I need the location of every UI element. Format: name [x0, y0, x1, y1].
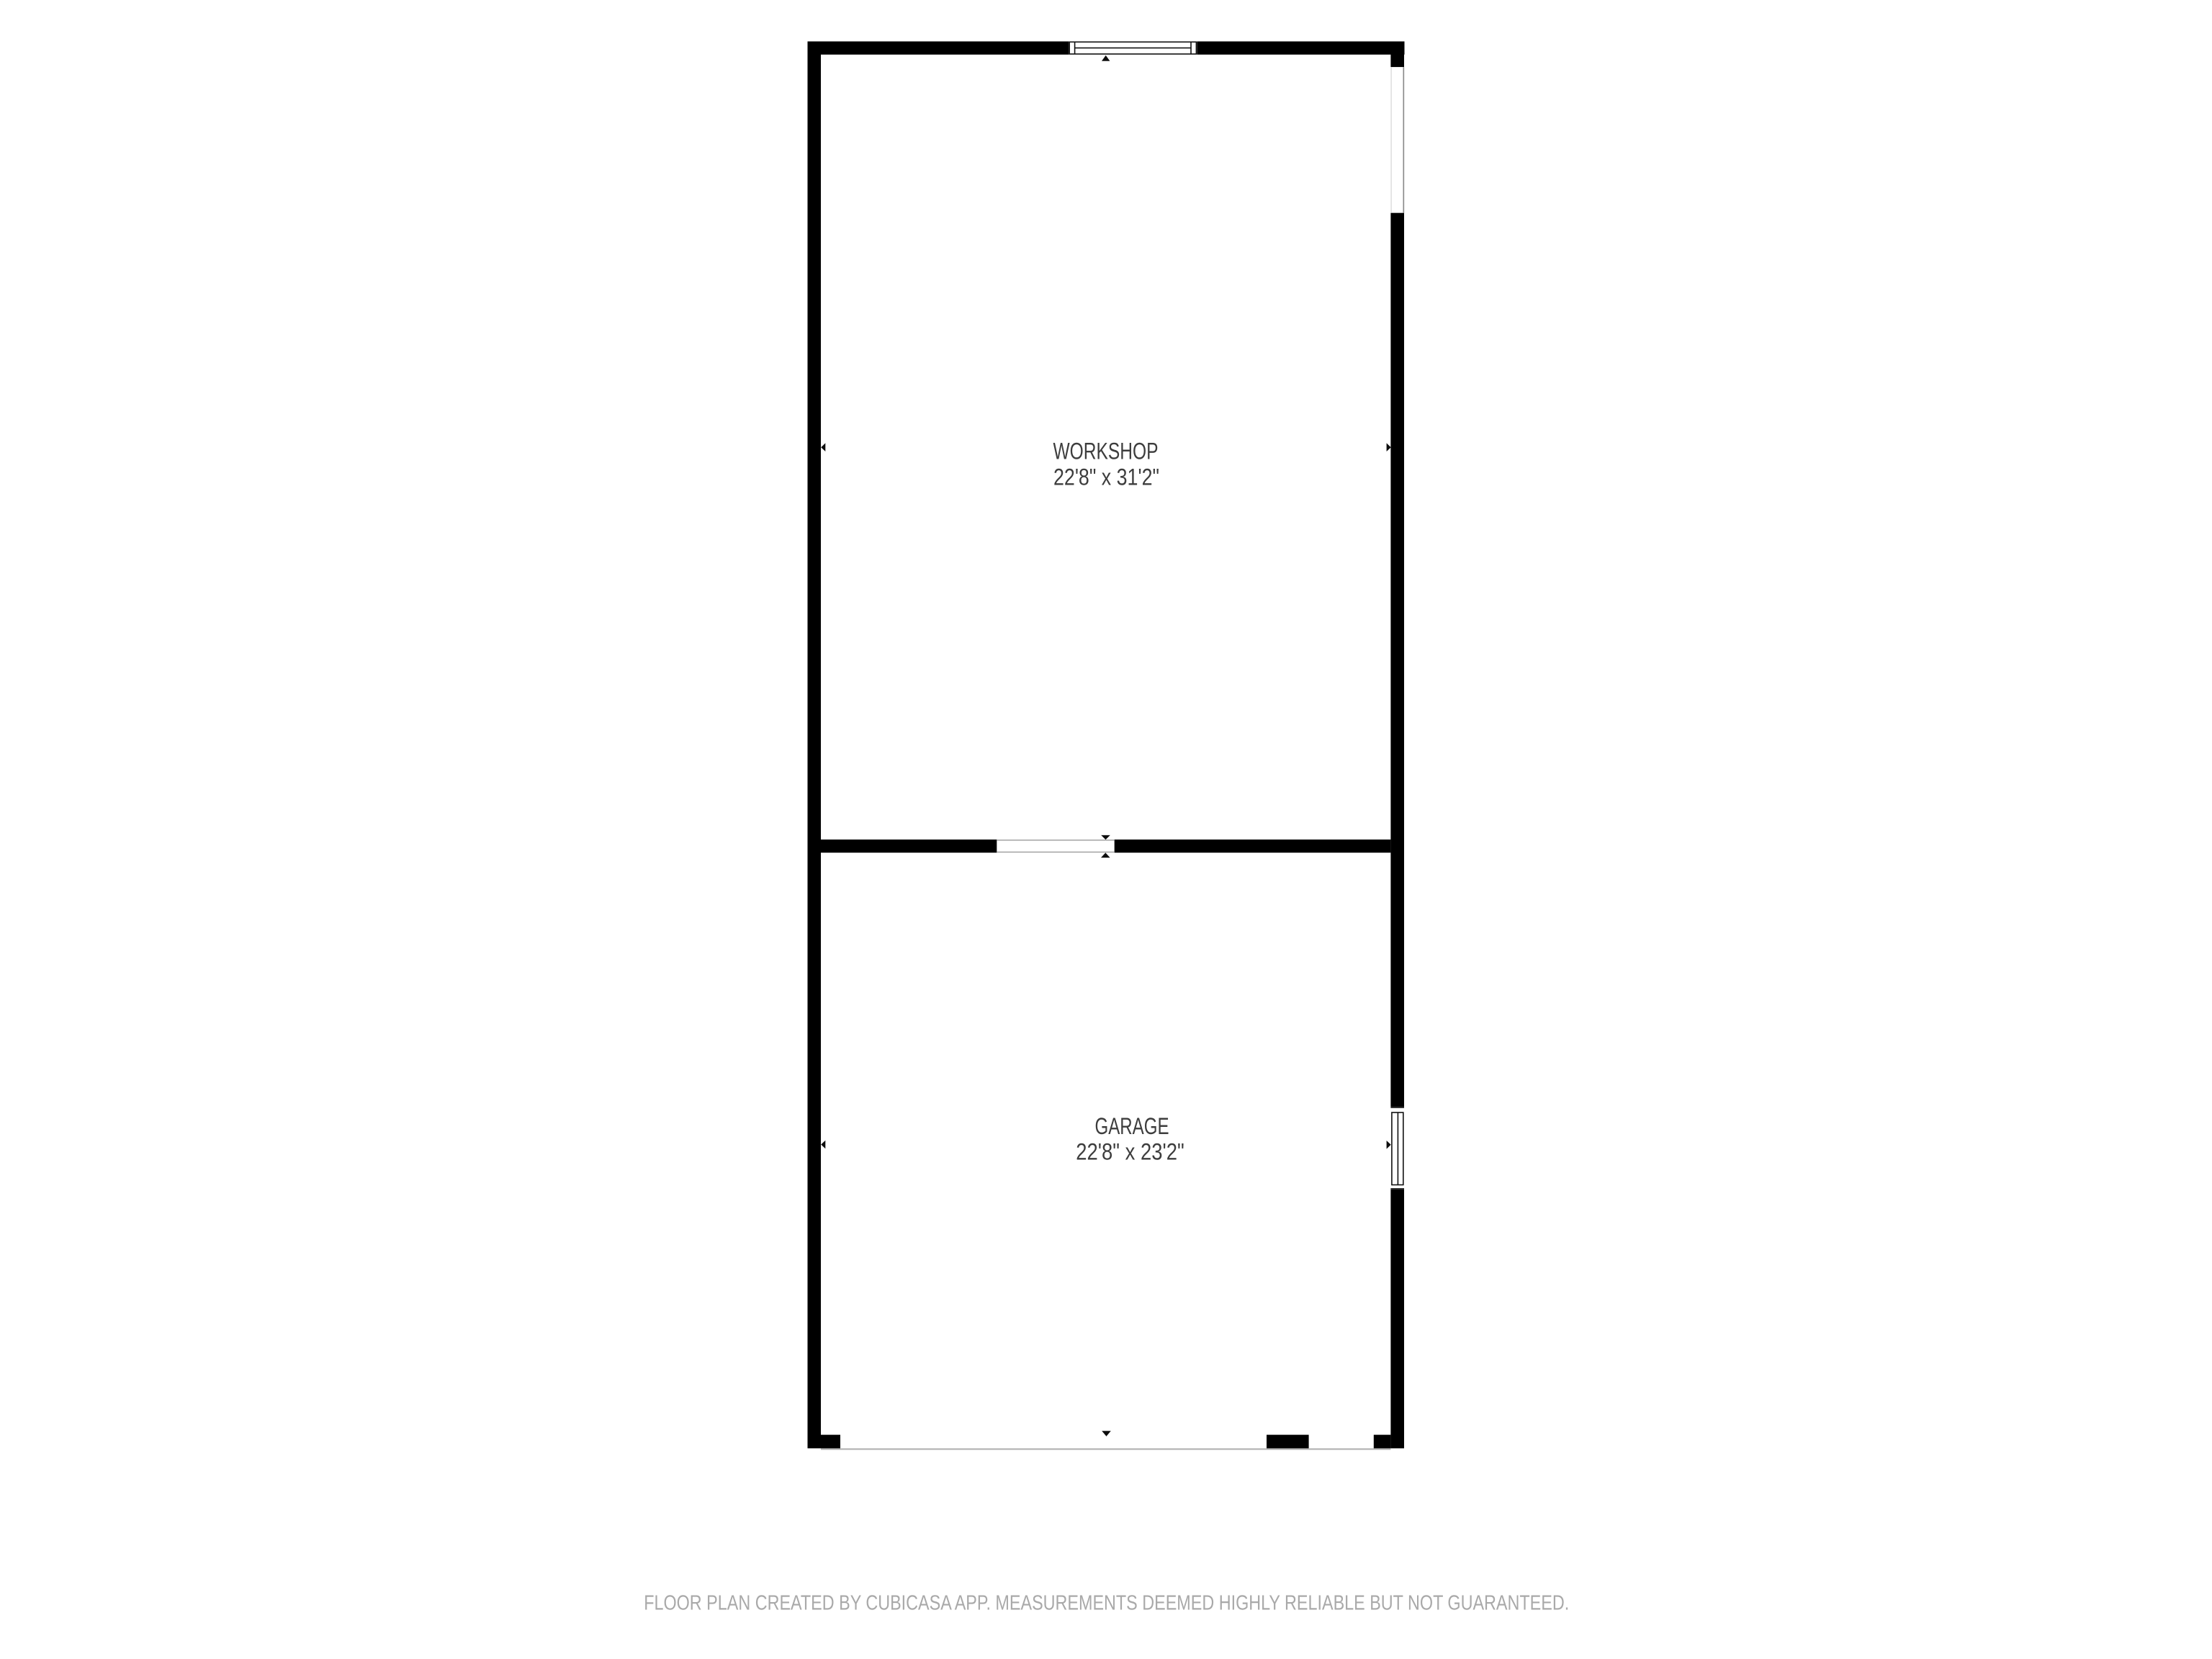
svg-text:WORKSHOP: WORKSHOP [1053, 439, 1159, 464]
svg-text:22'8" x 31'2": 22'8" x 31'2" [1053, 464, 1159, 490]
svg-text:GARAGE: GARAGE [1095, 1113, 1169, 1139]
svg-text:22'8" x 23'2": 22'8" x 23'2" [1076, 1139, 1184, 1165]
svg-text:FLOOR PLAN CREATED BY CUBICASA: FLOOR PLAN CREATED BY CUBICASA APP. MEAS… [644, 1591, 1569, 1614]
